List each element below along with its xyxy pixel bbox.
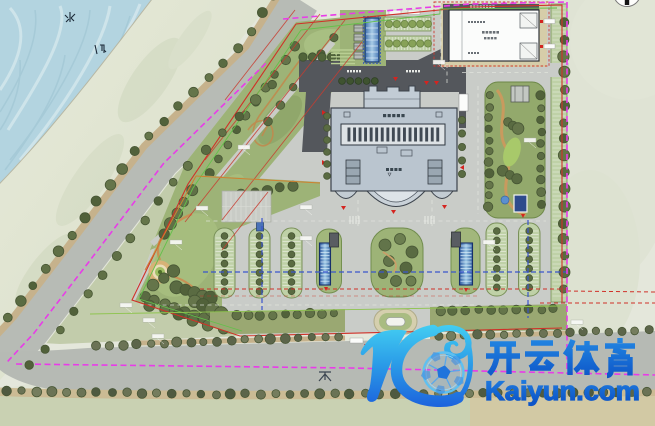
svg-text:Kaiyun.com: Kaiyun.com: [485, 376, 640, 406]
